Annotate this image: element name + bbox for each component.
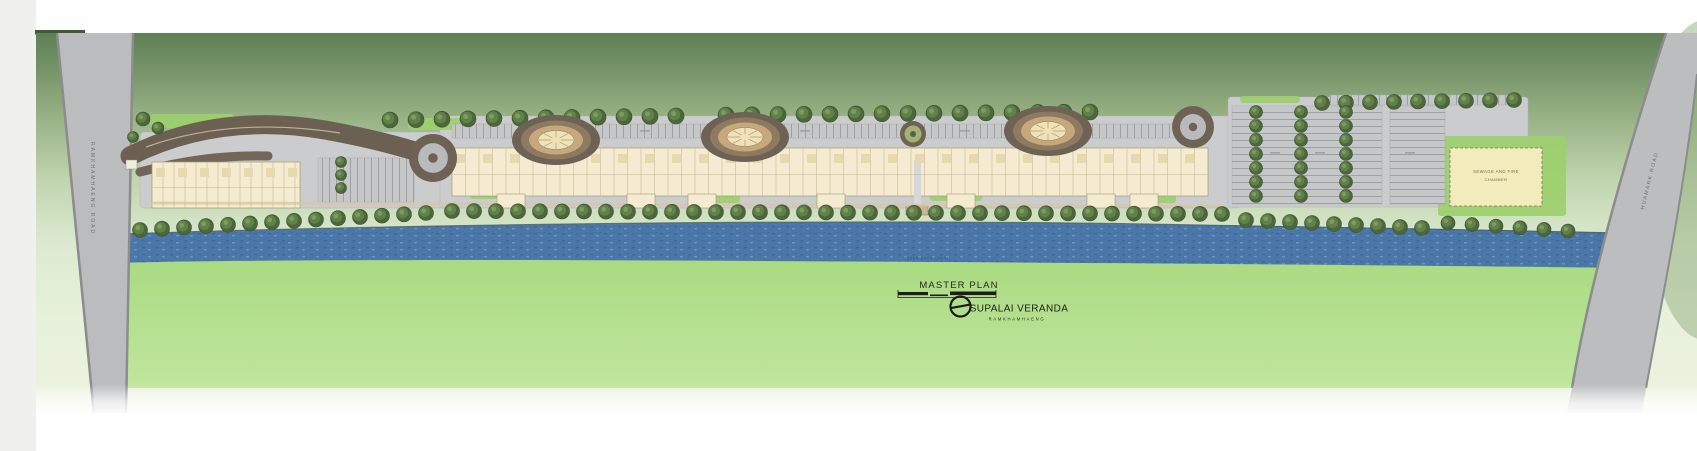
building-unit-accent [483,154,492,163]
tree [577,204,592,219]
green-patch [1240,96,1300,103]
tree [533,204,548,219]
tree [1415,221,1430,236]
tiny-label-mark [640,130,650,132]
tree [973,206,988,221]
central-walkway [914,160,921,206]
tree [1340,148,1353,161]
tree [1193,206,1208,221]
tree [1295,190,1308,203]
tree [336,157,347,168]
tree [1340,134,1353,147]
tree [375,208,390,223]
building-unit-accent [645,154,654,163]
tree [1250,148,1263,161]
tree [863,205,878,220]
building-unit-accent [222,168,231,177]
tree [621,204,636,219]
tree [753,205,768,220]
tree [128,132,139,143]
bottom-white-strip [36,413,1697,451]
tree [665,204,680,219]
tree [841,205,856,220]
tree [152,122,164,134]
tree [1250,176,1263,189]
building-unit-accent [1158,154,1167,163]
tree [1250,120,1263,133]
tree [1105,206,1120,221]
building-unit-accent [1077,154,1086,163]
tree [434,111,450,127]
tree [848,106,864,122]
tree [265,215,280,230]
building-unit-accent [510,154,519,163]
tree [1250,190,1263,203]
tree [136,112,150,126]
project-location: RAMKHAMHAENG [989,317,1046,322]
utility-building-label-line1: SEWAGE AND FIRE [1473,169,1519,174]
tree [995,206,1010,221]
building-unit-accent [915,154,924,163]
left-road-label: RAMKHAMHAENG ROAD [89,142,95,235]
tower-pod [1004,106,1092,156]
tree [590,109,606,125]
tree [221,217,236,232]
project-name: SUPALAI VERANDA [970,304,1069,315]
building-unit-accent [244,168,253,177]
tree [1411,94,1426,109]
tree [1340,190,1353,203]
tiny-label-mark [800,130,810,132]
tree [1371,219,1386,234]
tower-pod [701,112,789,162]
tree [1340,106,1353,119]
tree [1083,206,1098,221]
parking-lot [1390,106,1445,204]
tiny-label-mark [1270,152,1280,154]
tiny-label-mark [1315,152,1325,154]
tree [1283,215,1298,230]
tree [687,204,702,219]
building-unit-accent [861,154,870,163]
tree [1387,94,1402,109]
tree [243,216,258,231]
tree [1149,206,1164,221]
tree [460,111,476,127]
tree [616,109,632,125]
guard-house [126,160,137,169]
tree [731,205,746,220]
building-unit-accent [888,154,897,163]
tree [331,211,346,226]
tree [1061,206,1076,221]
tree [397,207,412,222]
tree [1295,134,1308,147]
building-unit-accent [456,154,465,163]
tree [1017,206,1032,221]
building-unit-accent [1023,154,1032,163]
tree [1315,96,1330,111]
building-wing [817,194,845,208]
canal-label: SAEN SAEB CANAL [907,257,949,261]
tree [1295,148,1308,161]
tree [1393,220,1408,235]
tree [907,205,922,220]
tree [1250,106,1263,119]
tree [287,213,302,228]
tree [775,205,790,220]
building-unit-accent [178,168,187,177]
tree [511,204,526,219]
tree [668,108,684,124]
tree [1349,218,1364,233]
tree [1459,93,1474,108]
master-plan-image: SAEN SAEB CANAL RAMKHAMHAENG ROAD HUAMAR… [0,0,1697,451]
tree [797,205,812,220]
tree [822,106,838,122]
tree [1363,95,1378,110]
master-plan-screenshot: SAEN SAEB CANAL RAMKHAMHAENG ROAD HUAMAR… [0,0,1697,451]
tree [951,205,966,220]
tree [382,112,398,128]
tree [1039,206,1054,221]
tree [1171,206,1186,221]
building-unit-accent [942,154,951,163]
tree [336,170,347,181]
utility-building-label-line2: CHAMBER [1485,177,1508,182]
tree [486,111,502,127]
tree [177,220,192,235]
tree [1340,120,1353,133]
tree [1215,207,1230,222]
building-unit-accent [996,154,1005,163]
tree [1305,216,1320,231]
tree [1561,224,1575,238]
tree [599,204,614,219]
building-unit-accent [699,154,708,163]
tree [1261,214,1276,229]
tree [1127,206,1142,221]
building-unit-accent [1131,154,1140,163]
tree [555,204,570,219]
tree [885,205,900,220]
building-unit-accent [1185,154,1194,163]
tree [1483,93,1498,108]
building-unit-accent [780,154,789,163]
tree [1295,176,1308,189]
building-unit-accent [591,154,600,163]
tree [1295,162,1308,175]
building-unit-accent [672,154,681,163]
tree [1537,222,1551,236]
building-unit-accent [969,154,978,163]
building-unit-accent [1104,154,1113,163]
tree [1441,216,1455,230]
tree [952,105,968,121]
tree [419,206,434,221]
tree [1435,94,1450,109]
tree [353,209,368,224]
tree [1489,219,1503,233]
tiny-label-mark [1405,152,1415,154]
tree [199,219,214,234]
tree [1340,162,1353,175]
tree [926,105,942,121]
parking-lot [318,158,414,202]
tree [309,212,324,227]
tree [1340,176,1353,189]
tree [1465,218,1479,232]
tree [709,205,724,220]
tree [1250,134,1263,147]
tree [155,221,170,236]
tree [1507,93,1522,108]
tree [408,112,424,128]
tree [1295,120,1308,133]
tree [133,223,148,238]
bottom-fade [36,384,1697,417]
tiny-label-mark [960,130,970,132]
roundabout [409,134,457,182]
roundabout [1172,106,1214,148]
tree [467,204,482,219]
tree [445,204,460,219]
building-unit-accent [834,154,843,163]
building-unit-accent [266,168,275,177]
tree [900,106,916,122]
building-unit-accent [200,168,209,177]
tree [642,108,658,124]
left-margin-strip [0,0,36,451]
tree [489,204,504,219]
tree [1327,217,1342,232]
tree [1295,106,1308,119]
tree [796,106,812,122]
tree [929,205,944,220]
tree [1250,162,1263,175]
building-unit-accent [288,168,297,177]
tree [1239,213,1254,228]
building-unit-accent [618,154,627,163]
field-lawn [120,256,1648,388]
tree [643,204,658,219]
tree [1513,221,1527,235]
central-garden-circle [900,121,926,147]
plan-title: MASTER PLAN [919,280,998,291]
tree [336,183,347,194]
building-unit-accent [156,168,165,177]
building-unit-accent [807,154,816,163]
tree [819,205,834,220]
tree [978,105,994,121]
tower-pod [512,115,600,165]
tree [874,106,890,122]
